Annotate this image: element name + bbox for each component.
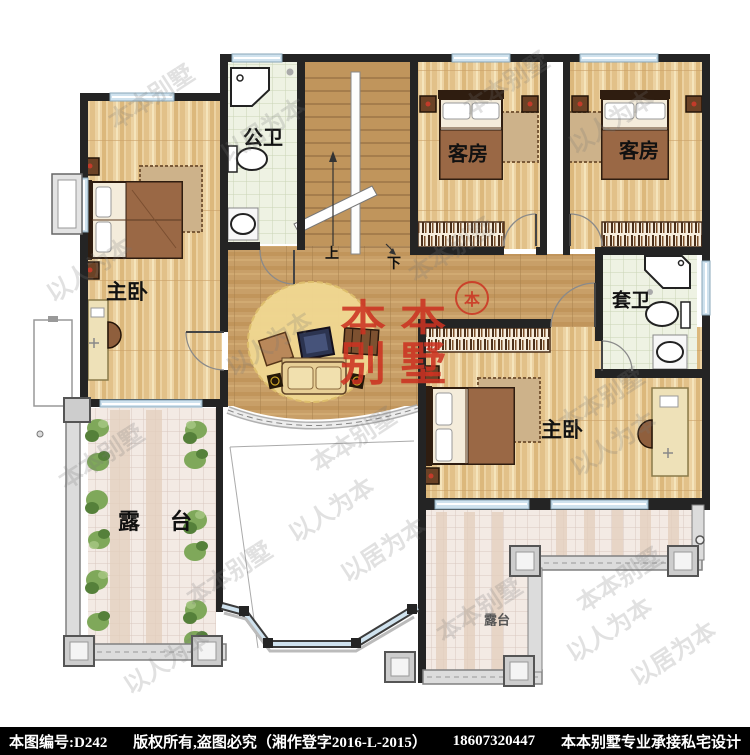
wardrobe-guest-1 <box>418 222 504 247</box>
floor-plan-drawing <box>0 0 750 700</box>
wardrobe-guest-2 <box>602 222 702 247</box>
stair-handrail <box>351 72 360 254</box>
footer-tagline: 本本别墅专业承接私宅设计 <box>561 731 741 752</box>
void-opening-lines <box>230 441 414 648</box>
floor-plan-page: 主卧 公卫 客房 客房 套卫 主卧 露台 露台 上 下 本本别墅 以居为本 以人… <box>0 0 750 755</box>
footer-phone: 18607320447 <box>453 733 536 750</box>
footer-copyright: 版权所有,盗图必究（湘作登字2016-L-2015） <box>133 731 427 752</box>
footer-serial: 本图编号:D242 <box>9 731 107 752</box>
tap-icon <box>696 536 704 544</box>
wardrobe-master-right <box>423 328 550 352</box>
footer-bar: 本图编号:D242 版权所有,盗图必究（湘作登字2016-L-2015） 186… <box>0 727 750 755</box>
bay-window <box>222 604 418 651</box>
